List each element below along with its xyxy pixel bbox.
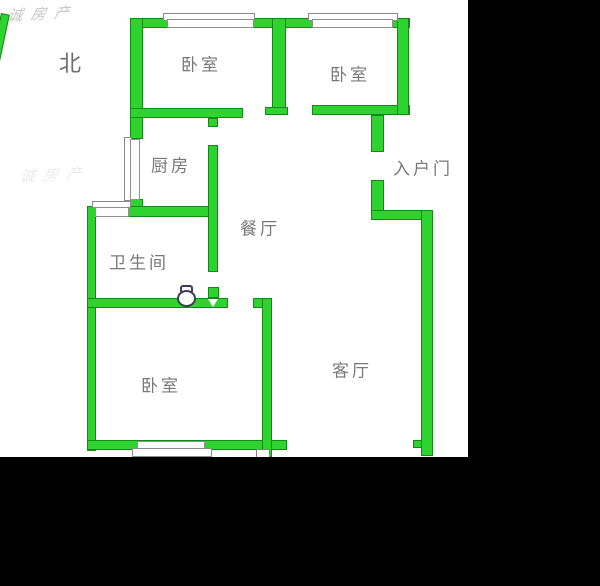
north-direction-line [0,13,10,124]
wall-between-bedrooms-base [265,107,288,115]
window-symbol-kitchen-inner [130,139,140,200]
wall-living-right [421,210,433,456]
wall-entry-lower [371,180,384,211]
door-jamb-marker [256,449,270,457]
room-label-bedroom-top-left: 卧室 [181,51,221,76]
letterbox-right [468,0,600,586]
wall-bedroom1-bottom [130,108,243,118]
wall-entry-upper [371,115,384,152]
window-symbol-bedroom2-inner [312,19,393,28]
wall-kitchen-door-stub [208,118,218,127]
toilet-icon [177,284,197,308]
wall-bathroom-bottom [87,298,228,308]
wall-left-upper [130,18,143,139]
wall-bedroom2-bottom [312,105,410,115]
room-label-bedroom-top-right: 卧室 [330,61,370,86]
wall-bedroom-right [262,298,272,457]
wall-between-bedrooms [272,18,286,115]
floorplan-sheet: 诚房产 诚房产 北 [0,0,468,457]
wall-left-outer [87,206,96,451]
north-label: 北 [59,46,81,78]
toilet-bowl-shape [177,290,196,307]
floorplan-screenshot: 诚房产 诚房产 北 [0,0,600,586]
window-symbol-bedroom-bottom-outer [132,448,212,457]
wall-kitchen-right [208,145,218,272]
room-label-bathroom: 卫生间 [109,249,169,274]
window-symbol-bathroom-inner [95,207,129,217]
room-label-living: 客厅 [332,357,372,382]
watermark-text-faint: 诚房产 [18,162,91,187]
room-label-kitchen: 厨房 [151,152,191,177]
room-label-bedroom-bottom: 卧室 [141,372,181,397]
letterbox-bottom [0,457,468,586]
door-opening-arrow-icon [208,299,218,307]
wall-living-right-tick [413,440,422,448]
wall-bathroom-door-stub [208,287,219,298]
window-symbol-bedroom1-inner [167,19,254,28]
wall-bedroom2-right [397,18,409,115]
watermark-text: 诚房产 [6,1,79,26]
room-label-entry-door: 入户门 [393,155,453,180]
room-label-dining: 餐厅 [240,215,280,240]
